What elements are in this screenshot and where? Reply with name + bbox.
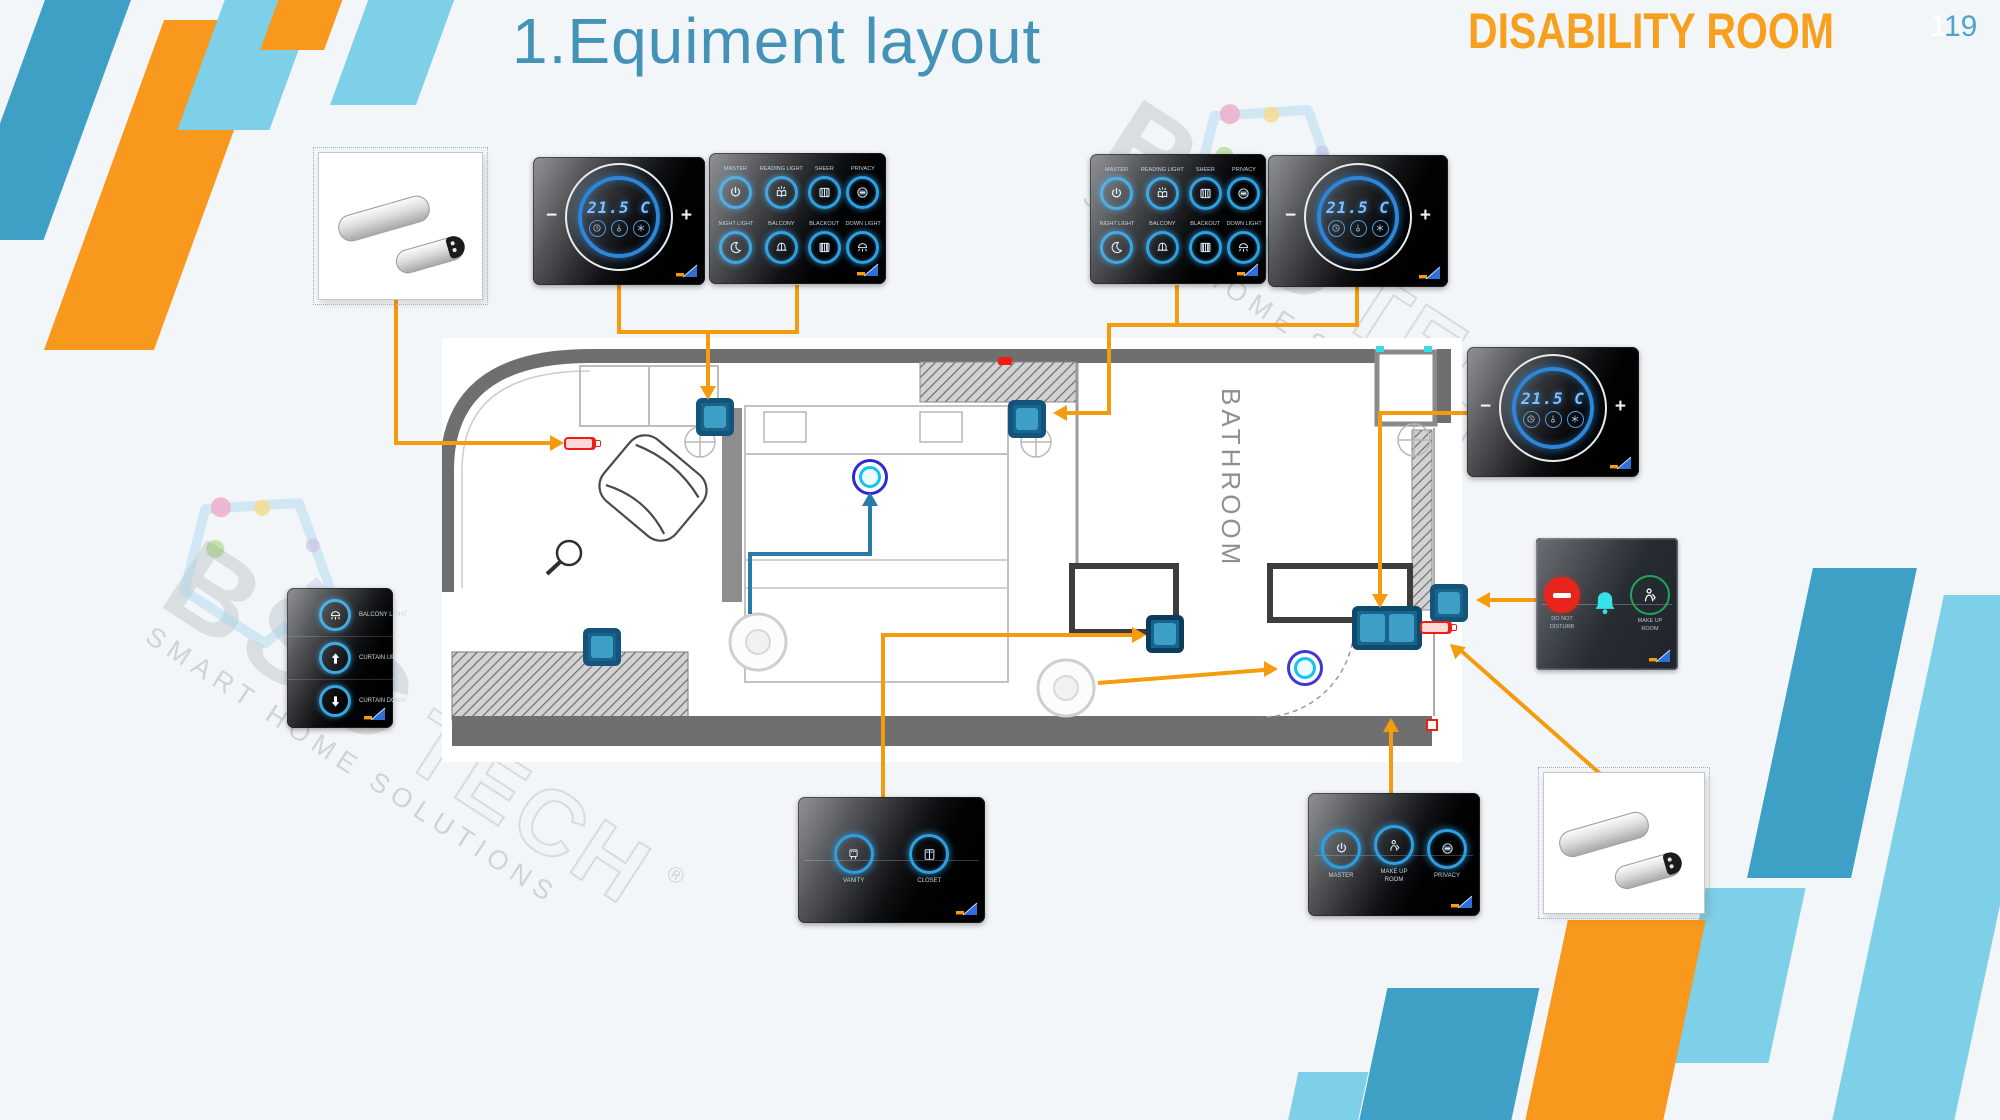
- bathroom-panel: VANITY CLOSET: [798, 797, 985, 923]
- housekeeping-icon: [1630, 575, 1670, 615]
- connector-line: [1488, 598, 1538, 602]
- thermometer-icon[interactable]: [1545, 411, 1562, 428]
- connector-line-teal: [868, 505, 872, 554]
- connector-arrow: [1383, 718, 1399, 732]
- scene-button-night-light[interactable]: NIGHT LIGHT: [1098, 221, 1136, 268]
- scene-button-reading-light[interactable]: READING LIGHT: [758, 166, 805, 214]
- connector-arrow: [1476, 592, 1490, 608]
- floorplan: BATHROOM: [442, 338, 1462, 762]
- vanity-light-icon: [846, 847, 861, 862]
- ceiling-light-bedroom: [730, 614, 786, 670]
- slide: BSC TECH ® SMART HOME SOLUTIONS BSC TECH…: [0, 0, 2000, 1120]
- door-sensor-magnet-icon: [335, 193, 433, 245]
- scene-button-reading-light[interactable]: READING LIGHT: [1139, 167, 1186, 214]
- connector-line: [1380, 411, 1468, 415]
- connector-line: [1389, 732, 1393, 793]
- reading-light-icon: [774, 185, 789, 200]
- connector-line: [881, 635, 885, 797]
- scene-panel-top-left: MASTER READING LIGHT SHEER PRIVACY NIGHT…: [709, 153, 886, 284]
- button-balcony-light[interactable]: BALCONY LIGHT: [287, 594, 393, 636]
- thermostat-panel-top-right: 21.5 C − +: [1268, 155, 1448, 287]
- ceiling-sensor-entry: [1287, 650, 1323, 686]
- scene-button-down-light[interactable]: DOWN LIGHT: [1225, 221, 1263, 268]
- door-sensor-magnet-icon: [1556, 809, 1652, 860]
- button-privacy[interactable]: PRIVACY: [1427, 829, 1467, 881]
- connector-line: [795, 285, 799, 332]
- button-make-up-room[interactable]: MAKE UP ROOM: [1374, 825, 1414, 884]
- connector-arrow: [700, 386, 716, 400]
- wall-switch-bathroom: [1146, 615, 1184, 653]
- scene-button-night-light[interactable]: NIGHT LIGHT: [717, 221, 755, 269]
- scene-button-master[interactable]: MASTER: [717, 166, 755, 214]
- brand-logo-icon: [1646, 648, 1672, 665]
- ceiling-sensor-bedroom: [852, 459, 888, 495]
- connector-line: [1107, 323, 1359, 327]
- connector-arrow: [1053, 405, 1067, 421]
- brand-logo-icon: [361, 706, 387, 723]
- door-sensor-body-icon: [393, 234, 467, 276]
- blackout-curtain-icon: [817, 240, 832, 255]
- doorbell-button[interactable]: [1588, 586, 1622, 623]
- stripe-decoration: [1286, 1072, 1369, 1120]
- partition-wall: [722, 408, 742, 602]
- hatched-wall-top: [920, 362, 1076, 402]
- arrow-down-icon: [328, 694, 343, 709]
- temperature-display: 21.5 C: [1326, 198, 1390, 217]
- connector-arrow: [550, 435, 564, 451]
- timer-icon[interactable]: [1523, 411, 1540, 428]
- scene-button-down-light[interactable]: DOWN LIGHT: [844, 221, 882, 269]
- privacy-icon: [1236, 186, 1251, 201]
- moon-icon: [1109, 240, 1124, 255]
- nightstand-left: [764, 412, 806, 442]
- dome-light-icon: [328, 608, 343, 623]
- temperature-display: 21.5 C: [587, 198, 651, 217]
- temp-up-button[interactable]: +: [1420, 205, 1431, 227]
- arrow-up-icon: [328, 651, 343, 666]
- temp-down-button[interactable]: −: [546, 205, 557, 227]
- do-not-disturb-button[interactable]: DO NOT DISTURB: [1544, 577, 1580, 630]
- balcony-light-icon: [774, 240, 789, 255]
- scene-button-balcony[interactable]: BALCONY: [758, 221, 805, 269]
- wall-switch-double-entry: [1352, 606, 1422, 650]
- connector-arrow: [1132, 627, 1146, 643]
- housekeeping-icon: [1387, 838, 1402, 853]
- cyan-tick: [1424, 346, 1432, 352]
- privacy-icon: [855, 185, 870, 200]
- connector-line: [1107, 325, 1111, 413]
- timer-icon[interactable]: [589, 220, 606, 237]
- brand-logo-icon: [1416, 265, 1442, 282]
- balcony-light-icon: [1155, 240, 1170, 255]
- connector-line: [617, 285, 621, 332]
- page-title: 1.Equiment layout: [512, 4, 1041, 78]
- wall-switch-entry-single: [1430, 584, 1468, 622]
- dnd-icon: [1544, 577, 1580, 613]
- hatched-wall-right: [1412, 430, 1432, 610]
- scene-button-blackout[interactable]: BLACKOUT: [1189, 221, 1222, 268]
- wall-switch-balcony: [583, 628, 621, 666]
- connector-line: [394, 441, 552, 445]
- button-closet[interactable]: CLOSET: [909, 834, 949, 886]
- fan-icon[interactable]: [1567, 411, 1584, 428]
- connector-line-teal: [748, 552, 872, 556]
- make-up-room-button[interactable]: MAKE UP ROOM: [1630, 575, 1670, 632]
- scene-button-balcony[interactable]: BALCONY: [1139, 221, 1186, 268]
- door-sensor-card-bottom: [1543, 772, 1705, 914]
- page-number: 19: [1944, 10, 1977, 44]
- stripe-decoration: [1357, 988, 1540, 1120]
- doorbell-panel: DO NOT DISTURB MAKE UP ROOM: [1536, 538, 1678, 670]
- brand-logo-icon: [1448, 894, 1474, 911]
- closet-icon: [922, 847, 937, 862]
- scene-panel-top-right: MASTER READING LIGHT SHEER PRIVACY NIGHT…: [1090, 154, 1266, 284]
- scene-button-privacy[interactable]: PRIVACY: [1225, 167, 1263, 214]
- connector-line-teal: [748, 554, 752, 614]
- door-sensor-card-top: [318, 152, 483, 300]
- stripe-decoration: [330, 0, 476, 105]
- blackout-curtain-icon: [1198, 240, 1213, 255]
- scene-button-sheer[interactable]: SHEER: [808, 166, 841, 214]
- thermostat-dial[interactable]: 21.5 C: [565, 163, 673, 271]
- button-curtain-up[interactable]: CURTAIN UP: [287, 636, 393, 679]
- connector-line: [706, 332, 710, 388]
- down-light-icon: [1236, 240, 1251, 255]
- service-panel: MASTER MAKE UP ROOM PRIVACY: [1308, 793, 1480, 916]
- wall-switch-bed-right: [1008, 400, 1046, 438]
- thermostat-dial[interactable]: 21.5 C: [1304, 163, 1412, 271]
- connector-line: [1175, 285, 1179, 325]
- sheer-curtain-icon: [817, 185, 832, 200]
- temperature-display: 21.5 C: [1521, 389, 1585, 408]
- brand-logo-icon: [854, 262, 880, 279]
- temp-up-button[interactable]: +: [681, 205, 692, 227]
- thermometer-icon[interactable]: [1350, 220, 1367, 237]
- wall-bottom: [452, 716, 1432, 746]
- thermostat-panel-right: 21.5 C − +: [1467, 347, 1639, 477]
- power-icon: [1109, 186, 1124, 201]
- thermometer-icon[interactable]: [611, 220, 628, 237]
- connector-arrow-teal: [862, 492, 878, 506]
- door-sensor-marker-top: [998, 357, 1012, 365]
- brand-logo-icon: [953, 901, 979, 918]
- thermostat-panel-top-left: 21.5 C − +: [533, 157, 705, 285]
- connector-arrow: [1264, 661, 1278, 677]
- connector-arrow: [1372, 594, 1388, 608]
- button-master[interactable]: MASTER: [1321, 829, 1361, 881]
- fan-icon[interactable]: [633, 220, 650, 237]
- connector-line: [394, 296, 398, 443]
- temp-down-button[interactable]: −: [1480, 396, 1491, 418]
- stripe-decoration: [1747, 568, 1917, 878]
- fan-icon[interactable]: [1372, 220, 1389, 237]
- connector-line: [1378, 411, 1382, 596]
- brand-logo-icon: [673, 263, 699, 280]
- scene-button-sheer[interactable]: SHEER: [1189, 167, 1222, 214]
- sheer-curtain-icon: [1198, 186, 1213, 201]
- temp-up-button[interactable]: +: [1615, 396, 1626, 418]
- ceiling-light-bathroom: [1038, 660, 1094, 716]
- brand-logo-icon: [1234, 262, 1260, 279]
- connector-line: [1066, 411, 1111, 415]
- curtain-panel-left: BALCONY LIGHT CURTAIN UP CURTAIN DOWN: [287, 588, 393, 728]
- power-icon: [728, 185, 743, 200]
- moon-icon: [728, 240, 743, 255]
- room-type-label: DISABILITY ROOM: [1468, 2, 1834, 60]
- down-light-icon: [855, 240, 870, 255]
- button-vanity[interactable]: VANITY: [834, 834, 874, 886]
- registered-mark: ®: [661, 860, 689, 891]
- door-sensor-marker-left: [564, 437, 594, 450]
- privacy-icon: [1440, 841, 1455, 856]
- scene-button-blackout[interactable]: BLACKOUT: [808, 221, 841, 269]
- power-icon: [1334, 841, 1349, 856]
- reading-light-icon: [1155, 186, 1170, 201]
- timer-icon[interactable]: [1328, 220, 1345, 237]
- bathroom-label: BATHROOM: [1216, 388, 1246, 568]
- door-sensor-marker-entry: [1420, 621, 1450, 634]
- door-sensor-body-icon: [1612, 850, 1684, 892]
- connector-line: [1355, 287, 1359, 325]
- connector-line: [881, 633, 1134, 637]
- nightstand-right: [920, 412, 962, 442]
- brand-logo-icon: [1607, 455, 1633, 472]
- stripe-decoration: [1522, 920, 1706, 1120]
- scene-button-privacy[interactable]: PRIVACY: [844, 166, 882, 214]
- temp-down-button[interactable]: −: [1285, 205, 1296, 227]
- scene-button-master[interactable]: MASTER: [1098, 167, 1136, 214]
- sensor-marker-bottom: [1426, 719, 1438, 731]
- wall-switch-bed-left: [696, 398, 734, 436]
- thermostat-dial[interactable]: 21.5 C: [1499, 354, 1607, 462]
- bell-icon: [1588, 586, 1622, 620]
- hatched-platform: [452, 652, 688, 720]
- cyan-tick: [1376, 346, 1384, 352]
